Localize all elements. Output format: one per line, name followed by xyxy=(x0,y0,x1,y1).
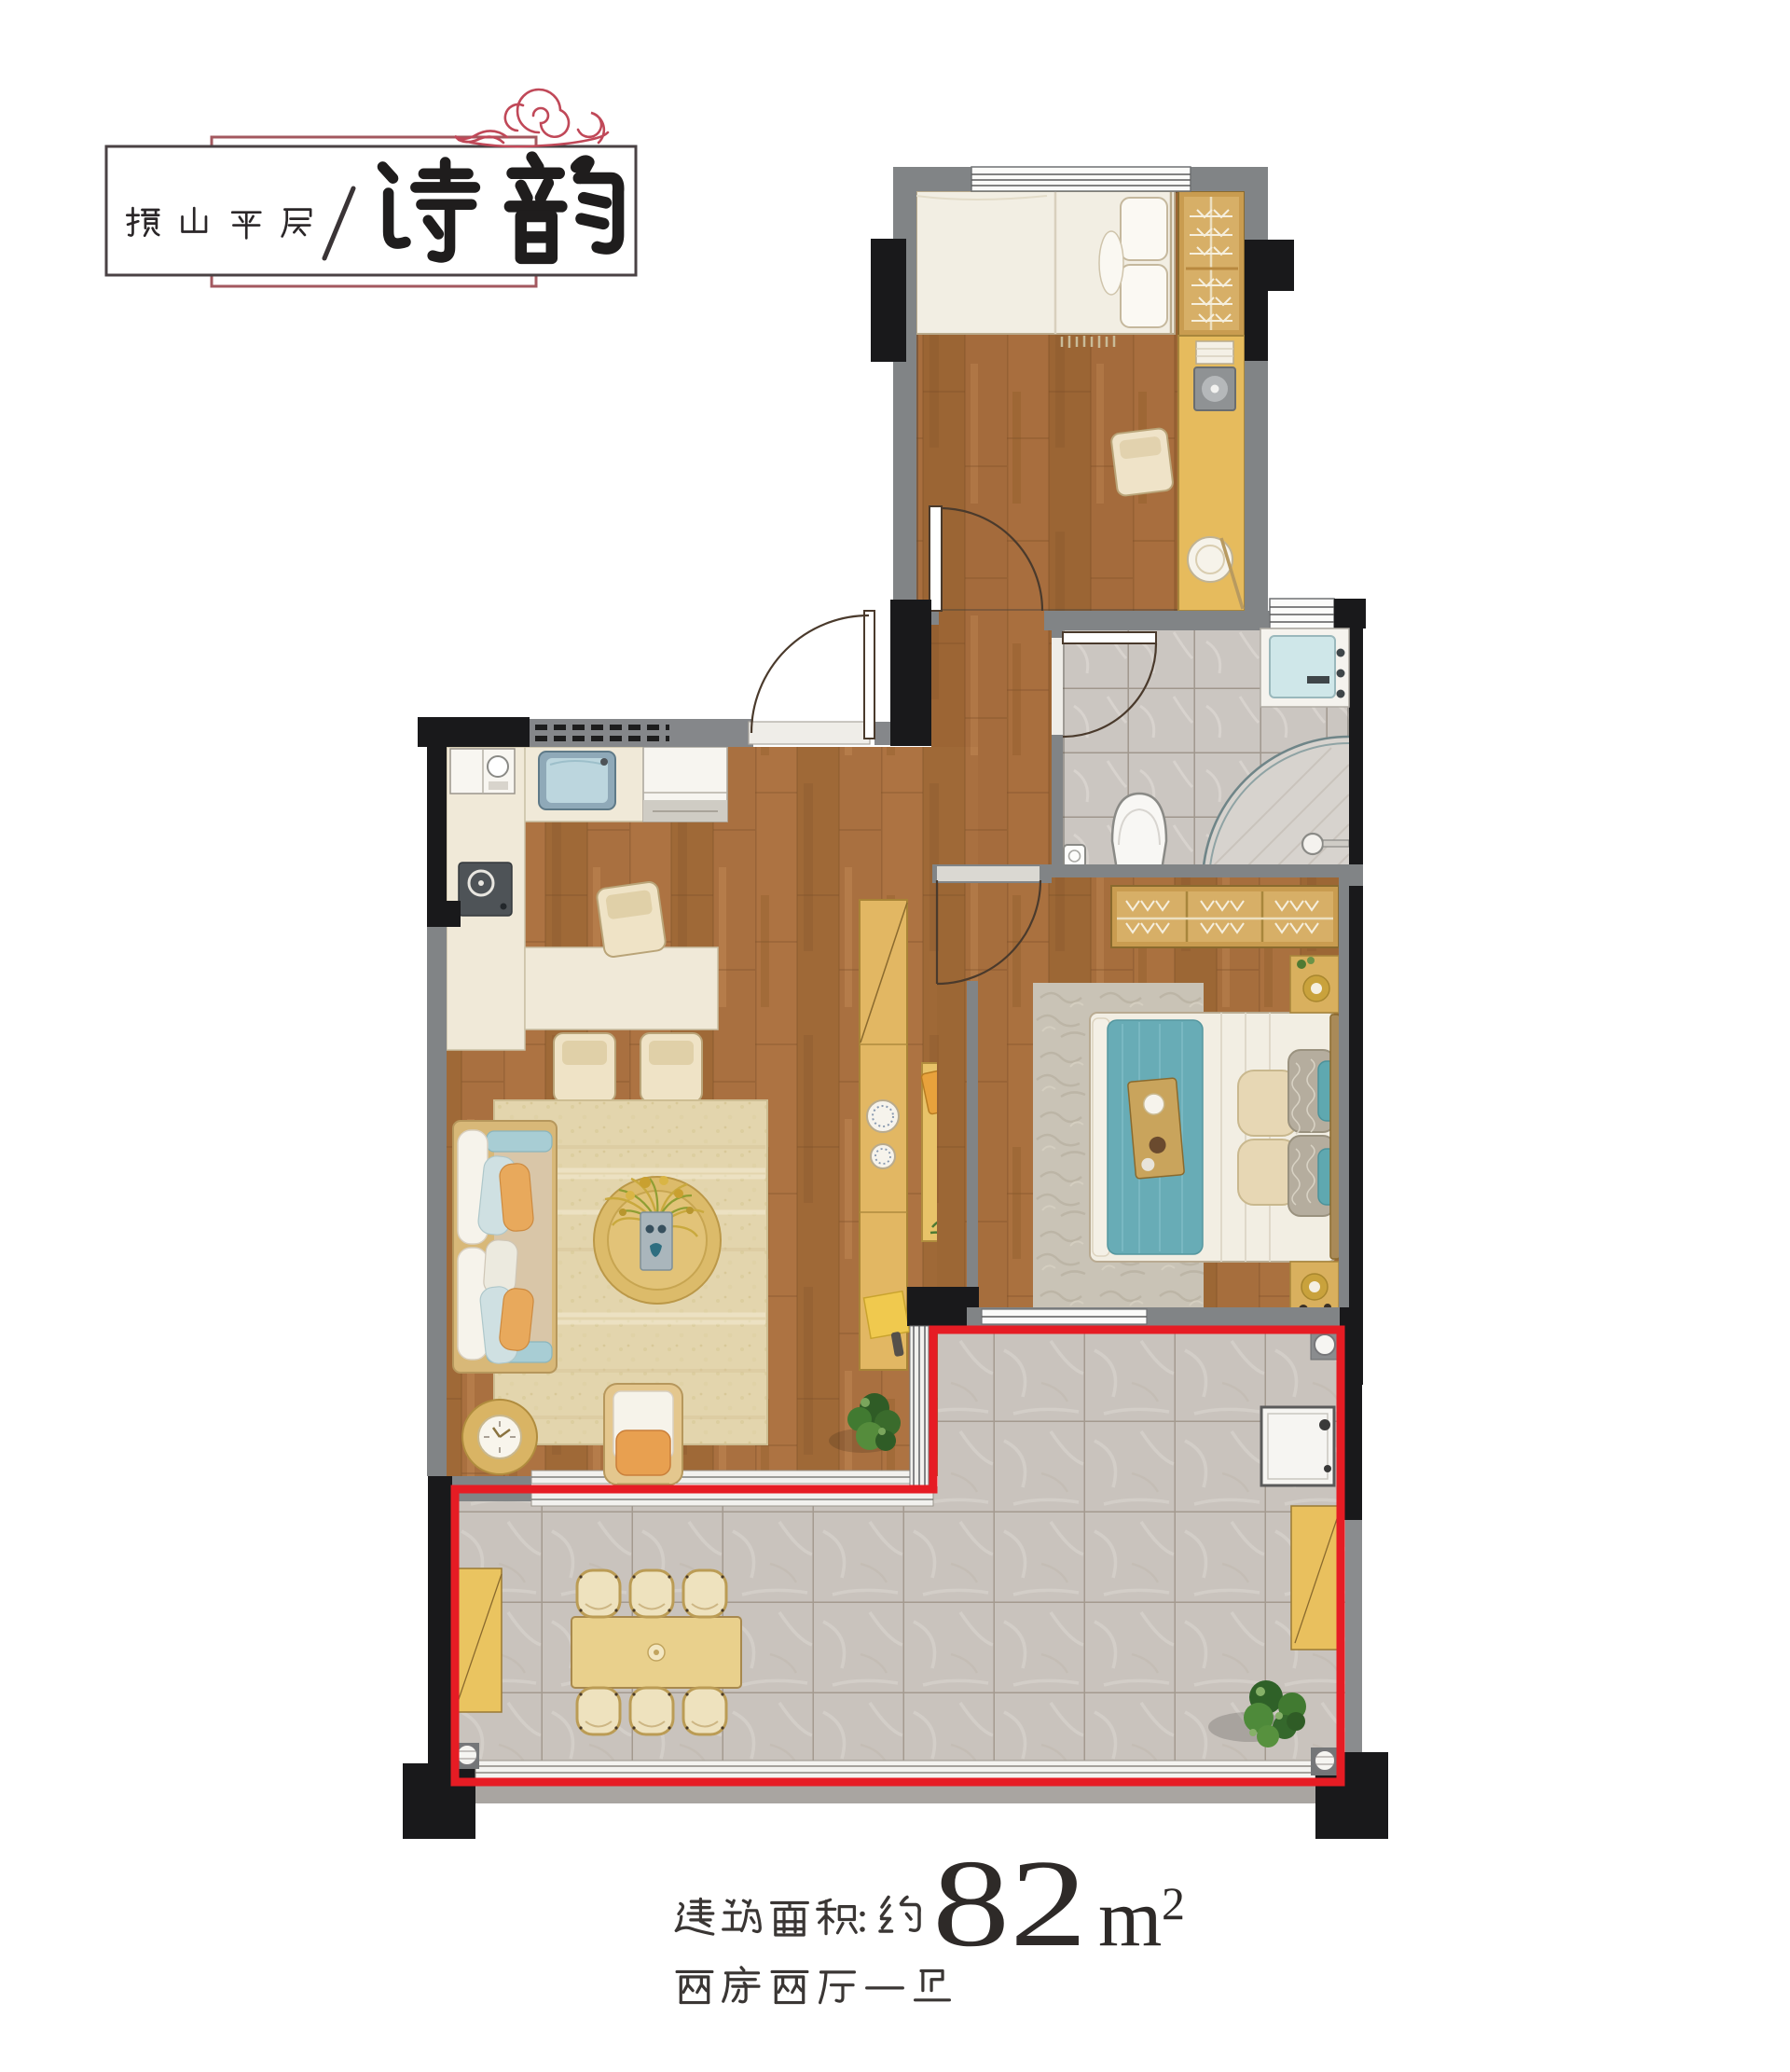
svg-text:82: 82 xyxy=(932,1834,1087,1972)
svg-text:m: m xyxy=(1098,1873,1162,1964)
svg-text:2: 2 xyxy=(1162,1877,1185,1929)
